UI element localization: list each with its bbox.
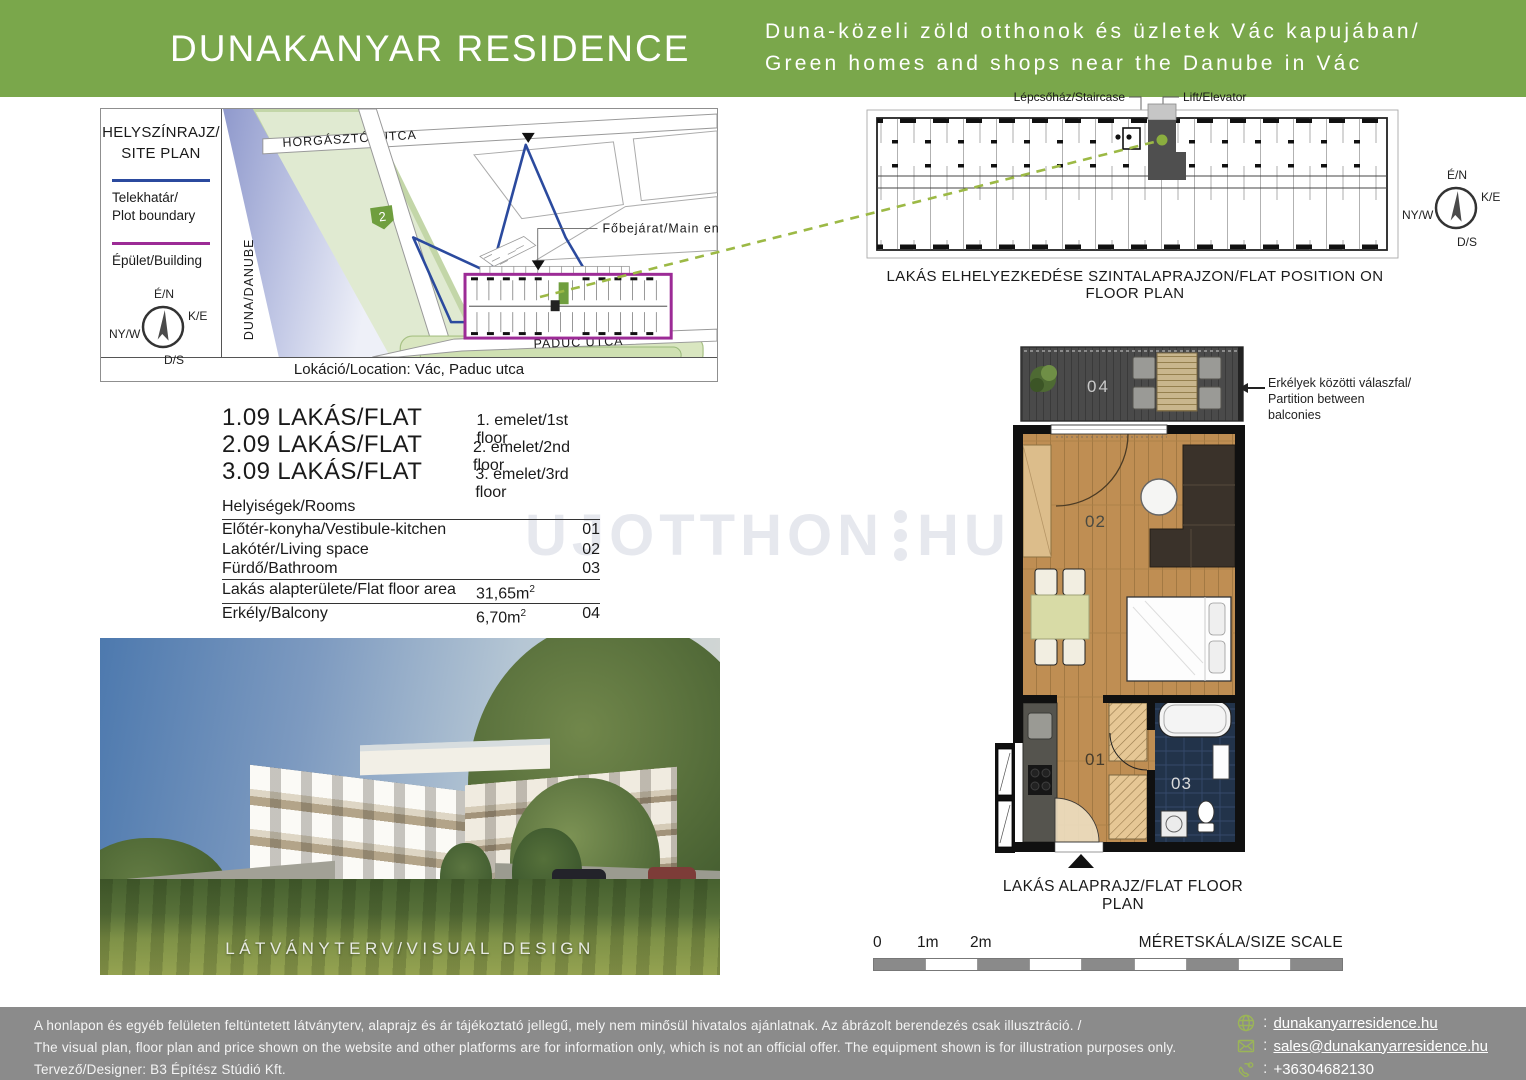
scale-tick: 2m bbox=[970, 934, 992, 952]
tagline-hu: Duna-közeli zöld otthonok és üzletek Vác… bbox=[765, 16, 1421, 48]
entrance-arrow bbox=[1068, 854, 1094, 868]
table-row-balcony: Erkély/Balcony 6,70m2 04 bbox=[222, 604, 600, 628]
room-label-bath: 03 bbox=[1171, 774, 1192, 793]
table-row: Fürdő/Bathroom 03 bbox=[222, 559, 600, 580]
building-footprint bbox=[465, 274, 671, 338]
river-label: DUNA/DANUBE bbox=[242, 239, 256, 340]
bathtub bbox=[1159, 701, 1231, 737]
flat-plan-caption: LAKÁS ALAPRAJZ/FLAT FLOOR PLAN bbox=[995, 878, 1251, 914]
svg-text:NY/W: NY/W bbox=[109, 327, 141, 341]
contact-phone[interactable]: : +36304682130 bbox=[1235, 1058, 1488, 1080]
building-label: Épület/Building bbox=[101, 252, 221, 270]
staircase bbox=[1123, 128, 1140, 149]
flat-list: 1.09 LAKÁS/FLAT 1. emelet/1st floor 2.09… bbox=[222, 404, 600, 628]
entrance-label: Főbejárat/Main entrance bbox=[602, 222, 718, 236]
highlighted-flat-position bbox=[1148, 120, 1176, 180]
phone-icon bbox=[1235, 1059, 1257, 1079]
header-tagline: Duna-közeli zöld otthonok és üzletek Vác… bbox=[765, 16, 1421, 80]
floor-strip-panel: Lépcsőház/Staircase Lift/Elevator bbox=[865, 88, 1410, 270]
disclaimer-hu: A honlapon és egyéb felületen feltüntete… bbox=[34, 1015, 1176, 1037]
scale-tick: 1m bbox=[917, 934, 939, 952]
wardrobe bbox=[1109, 703, 1147, 761]
scale-title: MÉRETSKÁLA/SIZE SCALE bbox=[1139, 934, 1343, 952]
table-row: Lakótér/Living space 02 bbox=[222, 540, 600, 560]
bed bbox=[1127, 597, 1231, 681]
scale-bar bbox=[873, 958, 1343, 971]
highlighted-flat bbox=[559, 282, 569, 304]
table-row-area: Lakás alapterülete/Flat floor area 31,65… bbox=[222, 580, 600, 605]
elevator-shaft bbox=[1148, 104, 1176, 120]
site-plan-panel: HELYSZÍNRAJZ/ SITE PLAN Telekhatár/ Plot… bbox=[100, 108, 718, 382]
scale-tick: 0 bbox=[873, 934, 882, 952]
site-plan-title: HELYSZÍNRAJZ/ SITE PLAN bbox=[101, 122, 221, 164]
site-plan-legend: HELYSZÍNRAJZ/ SITE PLAN Telekhatár/ Plot… bbox=[101, 109, 222, 357]
washbasin bbox=[1161, 811, 1187, 837]
wardrobe bbox=[1109, 775, 1147, 839]
disclaimer: A honlapon és egyéb felületen feltüntete… bbox=[34, 1015, 1176, 1080]
svg-text:É/N: É/N bbox=[154, 286, 174, 301]
balcony-room: 04 bbox=[1021, 347, 1243, 421]
table-row: Előtér-konyha/Vestibule-kitchen 01 bbox=[222, 520, 600, 540]
contact-website[interactable]: : dunakanyarresidence.hu bbox=[1235, 1012, 1488, 1034]
svg-text:K/E: K/E bbox=[188, 309, 207, 323]
window-bay bbox=[995, 743, 1015, 853]
contact-block: : dunakanyarresidence.hu : sales@dunakan… bbox=[1235, 1012, 1488, 1080]
elevator-label: Lift/Elevator bbox=[1183, 90, 1246, 104]
svg-text:D/S: D/S bbox=[1457, 235, 1477, 249]
header: DUNAKANYAR RESIDENCE Duna-közeli zöld ot… bbox=[0, 0, 1526, 97]
round-table bbox=[1141, 479, 1177, 515]
render-caption: LÁTVÁNYTERV/VISUAL DESIGN bbox=[100, 939, 720, 959]
room-label-balcony: 04 bbox=[1087, 377, 1110, 396]
plot-boundary-swatch bbox=[112, 179, 210, 182]
compass-icon: É/N K/E NY/W D/S bbox=[101, 280, 222, 372]
staircase-label: Lépcsőház/Staircase bbox=[1014, 90, 1126, 104]
size-scale: 0 1m 2m MÉRETSKÁLA/SIZE SCALE bbox=[873, 934, 1343, 971]
floor-strip-caption: LAKÁS ELHELYEZKEDÉSE SZINTALAPRAJZON/FLA… bbox=[865, 268, 1405, 302]
brand-logo: DUNAKANYAR RESIDENCE bbox=[170, 0, 690, 97]
designer-credit: Tervező/Designer: B3 Építész Stúdió Kft. bbox=[34, 1059, 1176, 1080]
tagline-en: Green homes and shops near the Danube in… bbox=[765, 48, 1421, 80]
building-swatch bbox=[112, 242, 210, 245]
plot-boundary-label: Telekhatár/ Plot boundary bbox=[101, 189, 221, 225]
room-label-vestibule: 01 bbox=[1085, 750, 1106, 769]
dining-table bbox=[1031, 595, 1089, 639]
partition-arrow bbox=[1243, 387, 1265, 389]
room-label-living: 02 bbox=[1085, 512, 1106, 531]
mail-icon bbox=[1235, 1036, 1257, 1056]
flat-floor-plan: 04 02 bbox=[995, 345, 1251, 880]
kitchen-counter bbox=[1023, 703, 1057, 842]
globe-icon bbox=[1235, 1013, 1257, 1033]
toilet bbox=[1198, 801, 1214, 832]
svg-text:É/N: É/N bbox=[1447, 167, 1467, 182]
bath-cabinet bbox=[1213, 745, 1229, 779]
hedge bbox=[100, 879, 720, 975]
site-plan-map: DUNA/DANUBE HORGÁSZTÓI UTCA 2 bbox=[222, 109, 718, 357]
visual-design-image: LÁTVÁNYTERV/VISUAL DESIGN bbox=[100, 638, 720, 975]
flat-row: 1.09 LAKÁS/FLAT 1. emelet/1st floor bbox=[222, 404, 600, 431]
footer: A honlapon és egyéb felületen feltüntete… bbox=[0, 1007, 1526, 1080]
watermark-colon bbox=[894, 510, 907, 561]
svg-text:NY/W: NY/W bbox=[1402, 208, 1434, 222]
partition-annotation: Erkélyek közötti válaszfal/ Partition be… bbox=[1268, 375, 1418, 423]
disclaimer-en: The visual plan, floor plan and price sh… bbox=[34, 1037, 1176, 1059]
svg-text:D/S: D/S bbox=[164, 353, 184, 367]
contact-email[interactable]: : sales@dunakanyarresidence.hu bbox=[1235, 1035, 1488, 1057]
compass-icon-right: É/N K/E NY/W D/S bbox=[1400, 158, 1522, 258]
brochure-page: DUNAKANYAR RESIDENCE Duna-közeli zöld ot… bbox=[0, 0, 1526, 1080]
balcony-table bbox=[1157, 353, 1197, 411]
svg-text:K/E: K/E bbox=[1481, 190, 1500, 204]
rooms-table: Helyiségek/Rooms Előtér-konyha/Vestibule… bbox=[222, 498, 600, 628]
